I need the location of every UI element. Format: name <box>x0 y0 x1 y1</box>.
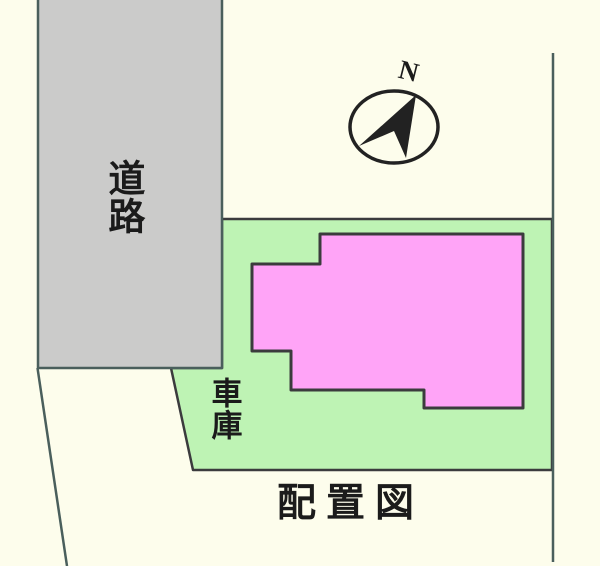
road-label: 道路 <box>102 159 141 235</box>
plan-title: 配置図 <box>277 484 424 525</box>
boundary-line-left <box>38 368 68 566</box>
compass-needle <box>359 95 416 158</box>
compass-icon <box>350 91 438 163</box>
garage-label: 車庫 <box>207 377 240 441</box>
site-plan: 道路 車庫 配置図 N <box>0 0 600 566</box>
